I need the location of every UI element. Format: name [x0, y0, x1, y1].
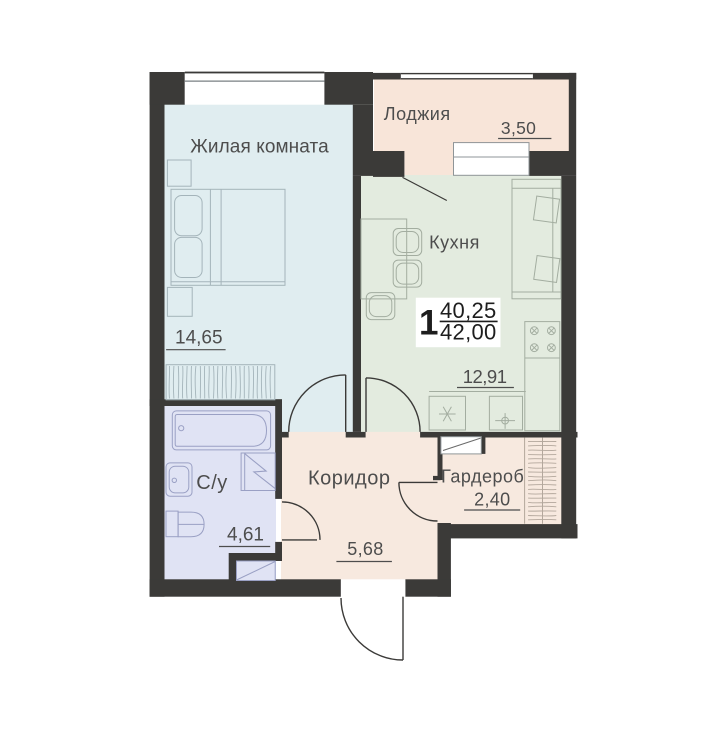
svg-text:1: 1 — [419, 303, 438, 342]
svg-text:Лоджия: Лоджия — [384, 104, 451, 124]
svg-text:2,40: 2,40 — [474, 489, 510, 509]
svg-text:42,00: 42,00 — [440, 320, 497, 345]
svg-text:5,68: 5,68 — [347, 539, 383, 559]
svg-text:С/у: С/у — [196, 472, 228, 494]
svg-text:12,91: 12,91 — [463, 366, 507, 387]
svg-text:3,50: 3,50 — [501, 118, 536, 138]
svg-text:Жилая комната: Жилая комната — [190, 136, 329, 157]
svg-text:Коридор: Коридор — [308, 467, 390, 489]
svg-text:Гардероб: Гардероб — [441, 467, 524, 487]
svg-text:Кухня: Кухня — [429, 233, 480, 253]
svg-text:4,61: 4,61 — [227, 525, 264, 546]
svg-text:14,65: 14,65 — [175, 327, 223, 348]
